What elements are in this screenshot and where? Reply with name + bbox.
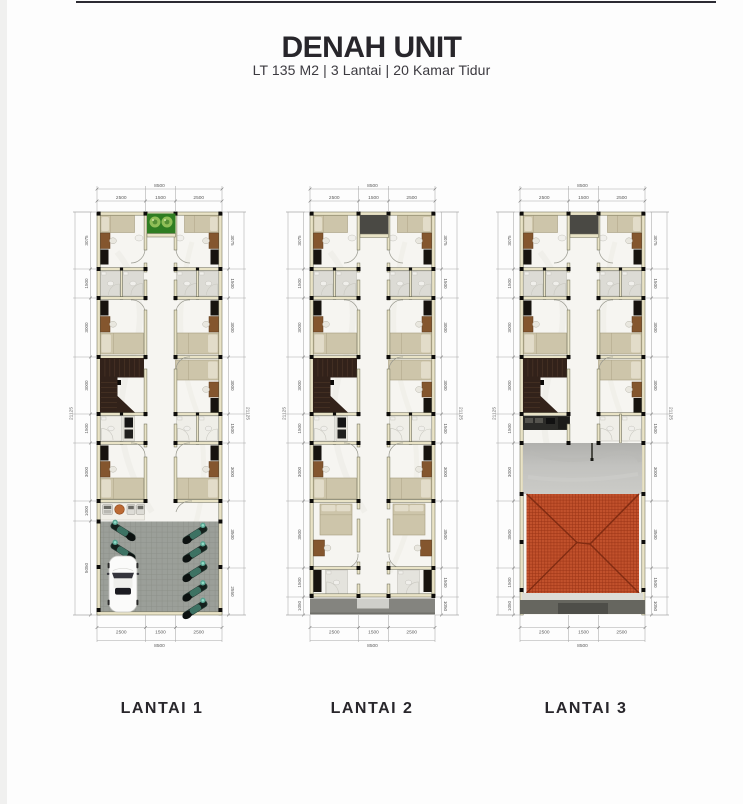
svg-text:1500: 1500 xyxy=(507,577,512,588)
svg-text:2500: 2500 xyxy=(193,195,204,201)
svg-text:3000: 3000 xyxy=(230,467,235,478)
svg-text:1500: 1500 xyxy=(443,577,448,588)
svg-text:8500: 8500 xyxy=(154,643,165,649)
svg-text:2500: 2500 xyxy=(116,630,127,636)
svg-text:1050: 1050 xyxy=(297,600,302,611)
svg-text:3000: 3000 xyxy=(443,467,448,478)
svg-text:1500: 1500 xyxy=(507,423,512,434)
svg-text:1500: 1500 xyxy=(155,195,166,201)
svg-text:1500: 1500 xyxy=(578,195,589,201)
svg-text:3075: 3075 xyxy=(230,235,235,246)
svg-text:3000: 3000 xyxy=(84,322,89,333)
svg-text:1500: 1500 xyxy=(297,577,302,588)
svg-text:3000: 3000 xyxy=(443,380,448,391)
svg-text:3000: 3000 xyxy=(297,322,302,333)
svg-text:8500: 8500 xyxy=(577,183,588,189)
svg-text:3000: 3000 xyxy=(84,380,89,391)
svg-text:3000: 3000 xyxy=(653,467,658,478)
svg-text:3500: 3500 xyxy=(653,529,658,540)
svg-text:3000: 3000 xyxy=(230,380,235,391)
svg-text:3500: 3500 xyxy=(297,529,302,540)
svg-text:1500: 1500 xyxy=(578,630,589,636)
svg-text:1500: 1500 xyxy=(84,423,89,434)
svg-text:1500: 1500 xyxy=(84,278,89,289)
svg-text:21125: 21125 xyxy=(69,407,75,420)
svg-text:1500: 1500 xyxy=(368,195,379,201)
svg-text:1500: 1500 xyxy=(368,630,379,636)
svg-text:3075: 3075 xyxy=(297,235,302,246)
svg-text:8500: 8500 xyxy=(577,643,588,649)
svg-text:21125: 21125 xyxy=(282,407,288,420)
svg-text:3000: 3000 xyxy=(443,322,448,333)
svg-text:8500: 8500 xyxy=(154,183,165,189)
svg-text:1500: 1500 xyxy=(297,423,302,434)
svg-text:2500: 2500 xyxy=(616,630,627,636)
svg-text:1500: 1500 xyxy=(230,278,235,289)
svg-text:21125: 21125 xyxy=(245,407,251,420)
svg-text:3000: 3000 xyxy=(297,466,302,477)
svg-text:3000: 3000 xyxy=(507,322,512,333)
svg-text:2500: 2500 xyxy=(116,195,127,201)
svg-text:2500: 2500 xyxy=(329,630,340,636)
svg-text:3000: 3000 xyxy=(230,322,235,333)
svg-text:2500: 2500 xyxy=(539,630,550,636)
svg-text:21125: 21125 xyxy=(458,407,464,420)
svg-text:3075: 3075 xyxy=(653,235,658,246)
svg-text:8500: 8500 xyxy=(367,183,378,189)
svg-text:3000: 3000 xyxy=(84,466,89,477)
svg-text:1500: 1500 xyxy=(653,278,658,289)
svg-text:1500: 1500 xyxy=(653,423,658,434)
svg-text:1050: 1050 xyxy=(653,601,658,612)
svg-text:2500: 2500 xyxy=(406,195,417,201)
svg-text:3000: 3000 xyxy=(653,380,658,391)
svg-text:1500: 1500 xyxy=(443,278,448,289)
svg-text:3500: 3500 xyxy=(507,529,512,540)
svg-text:3000: 3000 xyxy=(507,466,512,477)
svg-text:3075: 3075 xyxy=(443,235,448,246)
svg-text:1050: 1050 xyxy=(443,601,448,612)
svg-text:8500: 8500 xyxy=(367,643,378,649)
svg-text:3075: 3075 xyxy=(84,235,89,246)
svg-text:2500: 2500 xyxy=(616,195,627,201)
svg-text:21125: 21125 xyxy=(492,407,498,420)
svg-text:3000: 3000 xyxy=(653,322,658,333)
svg-text:1500: 1500 xyxy=(507,278,512,289)
svg-text:5050: 5050 xyxy=(84,562,89,573)
svg-text:1500: 1500 xyxy=(297,278,302,289)
svg-text:3500: 3500 xyxy=(230,529,235,540)
svg-text:2500: 2500 xyxy=(539,195,550,201)
svg-text:3500: 3500 xyxy=(443,529,448,540)
svg-text:1500: 1500 xyxy=(155,630,166,636)
svg-text:3000: 3000 xyxy=(297,380,302,391)
svg-text:21125: 21125 xyxy=(668,407,674,420)
svg-text:2500: 2500 xyxy=(329,195,340,201)
svg-text:2550: 2550 xyxy=(230,586,235,597)
svg-text:1500: 1500 xyxy=(653,577,658,588)
svg-text:1500: 1500 xyxy=(443,423,448,434)
svg-text:1050: 1050 xyxy=(507,600,512,611)
svg-text:1500: 1500 xyxy=(230,423,235,434)
svg-text:2500: 2500 xyxy=(406,630,417,636)
svg-text:3075: 3075 xyxy=(507,235,512,246)
svg-text:2500: 2500 xyxy=(193,630,204,636)
svg-text:3000: 3000 xyxy=(507,380,512,391)
svg-text:1000: 1000 xyxy=(84,505,89,516)
